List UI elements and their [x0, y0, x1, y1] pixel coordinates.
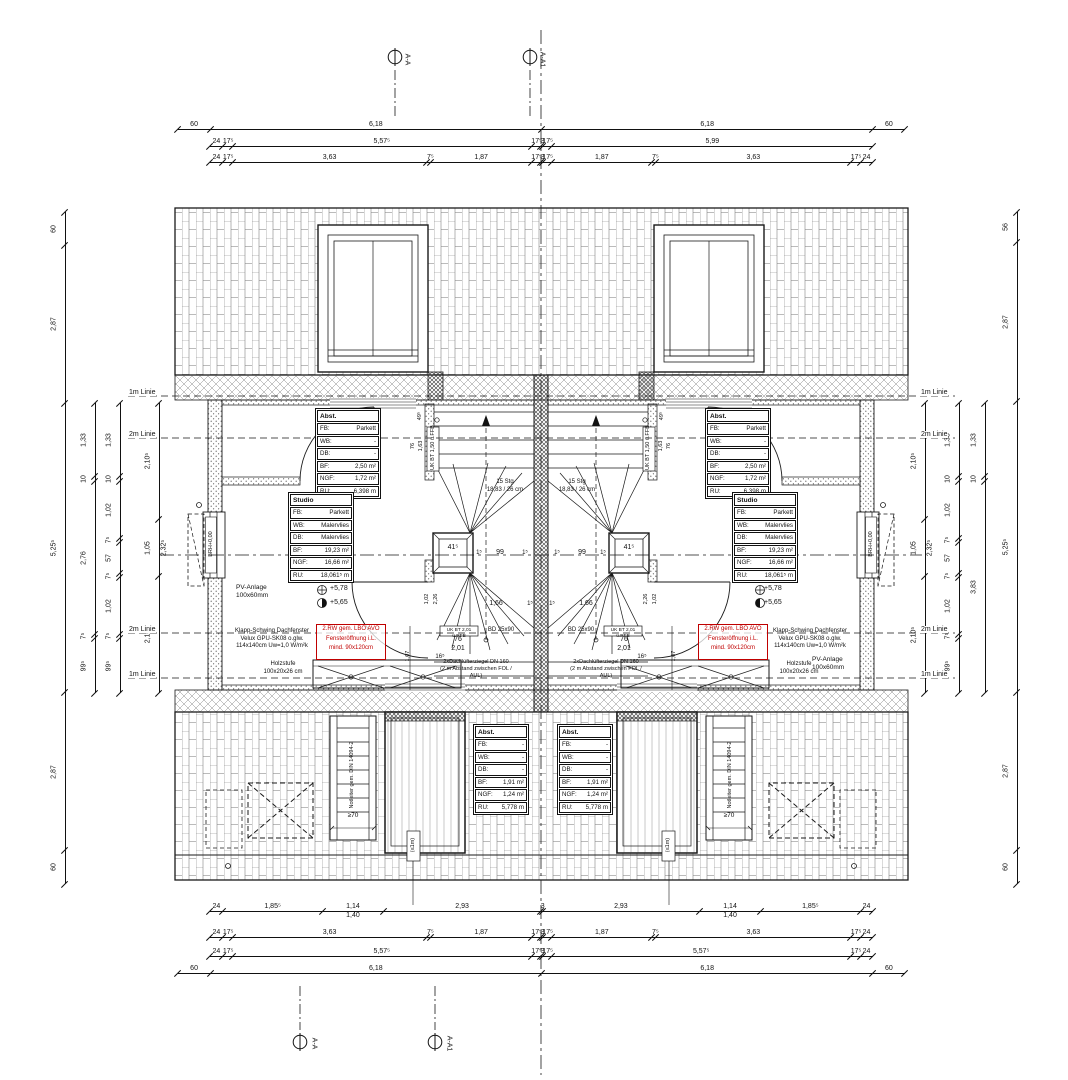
dimension-label: 2,10⁵ [145, 453, 152, 470]
table-title: Abst. [317, 410, 379, 422]
section-marker-aa1-top [520, 47, 540, 72]
stair-width-dim: 99 [572, 549, 592, 558]
dimension-label: 2,76 [81, 551, 88, 565]
dimension-label: 60 [873, 121, 905, 128]
table-row: BF:1,91 m² [559, 777, 611, 789]
dimension-label: 17⁵ [851, 948, 860, 955]
dim-row-bottom-outer: 606,186,1860 [178, 960, 905, 978]
dim-col-left-2: 1,33102,767⁵99⁵ [86, 403, 104, 693]
dimension-label: 60 [1003, 864, 1010, 872]
annotation-line: mind. 90x120cm [317, 644, 385, 654]
dim-226-right: 2,26 [643, 584, 649, 614]
dim-col-right-outer: 562,875,25⁵2,8760 [1008, 212, 1026, 884]
dimension-label: 56 [1003, 224, 1010, 232]
dimension-label: 3,63 [232, 154, 427, 161]
fire-escape-note-right: 2.RW gem. LBO AVOFensteröffnung i.L.mind… [698, 624, 768, 660]
dim-107-right: 1,07 [671, 641, 677, 671]
annotation-line: Klapp-Schwing Dachfenster [226, 628, 318, 636]
brh-label-right: BRH+0,00 [868, 522, 874, 566]
dimension-label: 17⁵ [542, 929, 551, 936]
annotation-line: (2 m Abstand zwischen FOL / AUL) [564, 666, 648, 680]
dimension-label: 2,93 [384, 903, 541, 910]
dimension-label: 1,05 [145, 541, 152, 555]
annotation-line: 100x60mm [236, 592, 294, 600]
annotation-line: 18,83 / 26 cm [479, 487, 531, 495]
dimension-label: 60 [51, 225, 58, 233]
dimension-label: 5,57⁵ [232, 138, 531, 145]
dimension-label: 1,05 [911, 541, 918, 555]
dimension-label: 3,63 [232, 929, 427, 936]
dimension-label: 24 [210, 138, 223, 145]
table-title: Studio [734, 494, 796, 506]
dimension-label: 99⁵ [106, 660, 113, 671]
dimension-label: 7⁵ [81, 633, 88, 640]
small-dim: 1⁵ [546, 601, 558, 609]
dimension-label: 2,93 [542, 903, 699, 910]
vent-tile-note-right: 2xDachlüfterziegel DN 160(2 m Abstand zw… [564, 659, 648, 680]
dimension-label: 24 [860, 903, 873, 910]
metre-line-label: 2m Linie [128, 626, 156, 633]
table-row: NGF:1,72 m² [317, 473, 379, 485]
ukbt150-label-left: UK BT 1,50 ü.FFB [430, 426, 436, 470]
table-row: NGF:1,24 m² [559, 789, 611, 801]
dimension-label: 1,02 [106, 599, 113, 613]
dimension-label: 1,14 [699, 903, 760, 910]
dimension-label: 17⁵ [223, 138, 232, 145]
dimension-label: 1,02 [945, 503, 952, 517]
dimension-label: 1,33 [971, 433, 978, 447]
dimension-label: 2,87 [51, 317, 58, 331]
annotation-line: mind. 90x120cm [699, 644, 767, 654]
table-row: WB:- [317, 436, 379, 448]
dim-165: 16⁵ [634, 654, 650, 662]
table-row: FB:Parkett [317, 423, 379, 435]
dimension-label: 7⁵ [106, 537, 113, 544]
dimension-label: 10 [81, 475, 88, 483]
annotation-line: 2.RW gem. LBO AVO [699, 625, 767, 635]
table-row: DB:- [317, 448, 379, 460]
dim-col-right-inner: 2,10⁵1,052,32⁵2,10⁵ [916, 403, 934, 693]
table-row: NGF:16,66 m² [290, 557, 352, 569]
dimension-label: 57 [945, 554, 952, 562]
dim-col-right-2: 1,33101,027⁵577⁵1,027⁵99⁵ [950, 403, 968, 693]
level-mark-upper-left: +5,78 [330, 585, 348, 594]
dimension-label: 7⁵ [106, 572, 113, 579]
room-table-studio-right: StudioFB:ParkettWB:MalervliesDB:Malervli… [732, 492, 798, 583]
annotation-line: 15 Stg [479, 479, 531, 487]
small-dim: 1⁵ [524, 601, 536, 609]
level-mark-upper-right: +5,78 [764, 585, 782, 594]
dim-102-left: 1,02 [424, 584, 430, 614]
stair-width-dim: 99 [490, 549, 510, 558]
annotation-line: 114x140cm Uw=1,0 W/m²k [764, 643, 856, 651]
dim-76-rot-left: 76 [410, 431, 416, 461]
dimension-label-secondary: 2,32⁵ [927, 540, 934, 557]
table-row: RU:18,061⁵ m [290, 570, 352, 582]
dimension-label: 6,18 [210, 121, 541, 128]
section-label-aa1-bottom: A-A1 [446, 1031, 453, 1057]
dim-row-top-inner: 2417⁵3,637⁵1,8717⁵317⁵1,877⁵3,6317⁵24 [210, 149, 873, 167]
dimension-label: 2,87 [1003, 315, 1010, 329]
dim-163-left: 1,63 [418, 431, 424, 461]
dim-102-right: 1,02 [652, 584, 658, 614]
dimension-label: 6,18 [542, 121, 873, 128]
dimension-label: 7⁵ [945, 572, 952, 579]
dim-495-right: 49⁵ [659, 404, 665, 428]
dim-201: 2,01 [446, 645, 470, 654]
small-dim: 1⁵ [518, 550, 532, 558]
dimension-label: 17⁵ [542, 948, 551, 955]
table-row: FB:Parkett [734, 507, 796, 519]
dimension-label: 17⁵ [542, 154, 551, 161]
annotation-line: PV-Anlage [236, 584, 294, 592]
dimension-label: 60 [873, 965, 905, 972]
stair-count-label-left: 15 Stg18,83 / 26 cm [479, 479, 531, 494]
table-row: DB:- [707, 448, 769, 460]
dim-row-bottom-2: 2417⁵3,637⁵1,8717⁵317⁵1,877⁵3,6317⁵24 [210, 924, 873, 942]
section-label-aa-bottom: A-A [311, 1031, 318, 1057]
dimension-line [959, 403, 960, 693]
table-title: Abst. [475, 726, 527, 738]
room-table-abst-bottom-right: Abst.FB:-WB:-DB:-BF:1,91 m²NGF:1,24 m²RU… [557, 724, 613, 815]
dim-row-bottom-1: 241,85⁵1,141,402,9332,931,141,401,85⁵24 [210, 898, 873, 916]
dimension-label: 17⁵ [223, 948, 232, 955]
dimension-label: 7⁵ [945, 537, 952, 544]
section-label-aa1-top: A-A1 [539, 47, 546, 73]
ukbt201-label-right: UK BT 2,01 ü.RFB [605, 628, 641, 640]
table-row: WB:Malervlies [734, 520, 796, 532]
pv-note-left: PV-Anlage100x60mm [236, 584, 294, 600]
annotation-line: 2.RW gem. LBO AVO [317, 625, 385, 635]
dimension-label: 3,83 [971, 581, 978, 595]
floor-plan-sheet: A-A A-A1 A-A A-A1 606,186,1860 2417⁵5,57… [0, 0, 1068, 1080]
chimney-dim-right: 41⁵ [615, 544, 643, 553]
dimension-label: 24 [210, 903, 223, 910]
dimension-label: 1,85⁵ [761, 903, 861, 910]
annotation-line: 18,83 / 26 cm [551, 487, 603, 495]
table-row: RU:18,061⁵ m [734, 570, 796, 582]
fire-escape-note-left: 2.RW gem. LBO AVOFensteröffnung i.L.mind… [316, 624, 386, 660]
table-row: WB:- [475, 752, 527, 764]
room-table-studio-left: StudioFB:ParkettWB:MalervliesDB:Malervli… [288, 492, 354, 583]
section-marker-aa1-bottom [425, 1032, 445, 1057]
dimension-label: 1,87 [552, 154, 652, 161]
metre-line-label: 2m Linie [920, 626, 948, 633]
table-row: BF:2,50 m² [707, 461, 769, 473]
vent-tile-note-left: 2xDachlüfterziegel DN 160(2 m Abstand zw… [434, 659, 518, 680]
table-row: DB:- [559, 764, 611, 776]
dimension-label: 60 [178, 121, 210, 128]
roof-window-note-left: Klapp-Schwing DachfensterVelux GPU-SK08 … [226, 628, 318, 651]
metre-line-label: 1m Linie [920, 389, 948, 396]
table-row: FB:- [475, 739, 527, 751]
dim-107-left: 1,07 [405, 641, 411, 671]
table-row: BF:19,23 m² [290, 545, 352, 557]
dimension-label: 24 [210, 929, 223, 936]
roof-window-note-right: Klapp-Schwing DachfensterVelux GPU-SK08 … [764, 628, 856, 651]
dimension-label: 2,10⁵ [911, 627, 918, 644]
dimension-label: 3,63 [656, 929, 851, 936]
dimension-label: 5,57⁵ [552, 948, 851, 955]
brh-label-left: BRH+0,00 [208, 522, 214, 566]
dim-col-left-3: 1,33101,027⁵577⁵1,027⁵99⁵ [111, 403, 129, 693]
annotation-line: 100x20x26 cm [252, 669, 314, 677]
dimension-label: 2,87 [1003, 765, 1010, 779]
dimension-label: 2,10⁵ [911, 453, 918, 470]
dim-row-top-outer: 606,186,1860 [178, 116, 905, 134]
bd-label-left: BD 25x90 [484, 627, 518, 635]
dimension-line [985, 403, 986, 693]
dim-row-bottom-3: 2417⁵5,57⁵17⁵317⁵5,57⁵17⁵24 [210, 943, 873, 961]
section-marker-aa-bottom [290, 1032, 310, 1057]
dimension-label: 1,33 [81, 433, 88, 447]
small-dim: 1⁵ [596, 550, 610, 558]
table-row: RU:5,778 m [475, 802, 527, 814]
table-row: WB:- [707, 436, 769, 448]
dim-76-rot-right: 76 [666, 431, 672, 461]
stair-count-label-right: 15 Stg18,83 / 26 cm [551, 479, 603, 494]
dimension-line [1017, 212, 1018, 884]
ukbt150-label-right: UK BT 1,50 ü.FFB [645, 426, 651, 470]
chimney-dim-left: 41⁵ [439, 544, 467, 553]
dimension-label: 24 [860, 929, 873, 936]
dimension-label: 2,87 [51, 765, 58, 779]
small-dim: 1⁵ [472, 550, 486, 558]
annotation-line: Klapp-Schwing Dachfenster [764, 628, 856, 636]
dimension-label: 99⁵ [945, 660, 952, 671]
dimension-label: 5,25⁵ [51, 540, 58, 557]
dimension-label: 60 [51, 864, 58, 872]
table-row: BF:19,23 m² [734, 545, 796, 557]
dimension-label: 17⁵ [851, 929, 860, 936]
ge70-label-left: ≥70 [340, 812, 366, 820]
dimension-label-secondary: 1,40 [699, 912, 760, 919]
dimension-label: 24 [860, 948, 873, 955]
table-row: RU:5,778 m [559, 802, 611, 814]
dimension-label: 10 [106, 475, 113, 483]
table-row: NGF:1,24 m² [475, 789, 527, 801]
annotation-line: Velux GPU-SK08 o.glw. [226, 636, 318, 644]
dim-495-left: 49⁵ [417, 404, 423, 428]
table-row: DB:- [475, 764, 527, 776]
table-row: WB:Malervlies [290, 520, 352, 532]
dimension-label: 17⁵ [531, 154, 540, 161]
annotation-line: Fensteröffnung i.L. [317, 635, 385, 645]
dimension-label-secondary: 2,32⁵ [161, 540, 168, 557]
ukbt201-label-left: UK BT 2,01 ü.RFB [441, 628, 477, 640]
metre-line-label: 2m Linie [920, 431, 948, 438]
dimension-label: 6,18 [210, 965, 541, 972]
annotation-line: (2 m Abstand zwischen FOL / AUL) [434, 666, 518, 680]
dimension-label: 24 [860, 154, 873, 161]
dimension-label: 24 [210, 154, 223, 161]
dimension-label: 17⁵ [531, 929, 540, 936]
dimension-label: 24 [210, 948, 223, 955]
table-title: Abst. [559, 726, 611, 738]
annotation-line: Holzstufe [252, 661, 314, 669]
dimension-label: 1,02 [945, 599, 952, 613]
annotation-line: 15 Stg [551, 479, 603, 487]
annotation-line: 114x140cm Uw=1,0 W/m²k [226, 643, 318, 651]
metre-line-label: 1m Linie [128, 671, 156, 678]
table-title: Abst. [707, 410, 769, 422]
dimension-label: 1,02 [106, 503, 113, 517]
annotation-line: Fensteröffnung i.L. [699, 635, 767, 645]
dim-226-left: 2,26 [433, 584, 439, 614]
stair-dim-166: 1,66 [572, 600, 600, 609]
dimension-label: 5,25⁵ [1003, 539, 1010, 556]
dimension-label: 3,63 [656, 154, 851, 161]
table-row: FB:Parkett [290, 507, 352, 519]
table-row: BF:1,91 m² [475, 777, 527, 789]
dimension-label: 10 [945, 475, 952, 483]
dimension-label: 1,87 [552, 929, 652, 936]
stair-dim-166: 1,66 [482, 600, 510, 609]
dimension-label: 57 [106, 554, 113, 562]
dimension-label: 17⁵ [531, 138, 540, 145]
dimension-label: 5,57⁵ [232, 948, 531, 955]
dim-163-right: 1,63 [658, 431, 664, 461]
level-mark-lower-right: +5,65 [764, 599, 782, 608]
table-row: BF:2,50 m² [317, 461, 379, 473]
room-table-abst-left: Abst.FB:ParkettWB:-DB:-BF:2,50 m²NGF:1,7… [315, 408, 381, 499]
metre-line-label: 2m Linie [128, 431, 156, 438]
table-row: FB:Parkett [707, 423, 769, 435]
dimension-label: 6,18 [542, 965, 873, 972]
dim-col-left-outer: 602,875,25⁵2,8760 [56, 212, 74, 884]
dimension-line [95, 403, 96, 693]
dimension-label-secondary: 1,40 [322, 912, 383, 919]
table-row: DB:Malervlies [290, 532, 352, 544]
dimension-label: 7⁵ [945, 633, 952, 640]
table-row: FB:- [559, 739, 611, 751]
dimension-label: 1,87 [431, 929, 531, 936]
dimension-label: 1,87 [431, 154, 531, 161]
dim-201: 2,01 [612, 645, 636, 654]
table-row: NGF:16,66 m² [734, 557, 796, 569]
small-dim: 1⁵ [550, 550, 564, 558]
dimension-label: 17⁵ [223, 929, 232, 936]
roof-upper-band [175, 208, 908, 375]
dimension-label: 1,85⁵ [223, 903, 323, 910]
annotation-line: 100x60mm [812, 664, 870, 672]
dimension-label: 10 [971, 475, 978, 483]
metre-line-label: 1m Linie [920, 671, 948, 678]
dimension-label: 17⁵ [542, 138, 551, 145]
holzstufe-note-left2: Holzstufe100x20x26 cm [252, 661, 314, 676]
level-mark-lower-left: +5,65 [330, 599, 348, 608]
dimension-label: 17⁵ [851, 154, 860, 161]
table-row: DB:Malervlies [734, 532, 796, 544]
table-title: Studio [290, 494, 352, 506]
dim-165: 16⁵ [432, 654, 448, 662]
annotation-line: PV-Anlage [812, 656, 870, 664]
metre-line-label: 1m Linie [128, 389, 156, 396]
dimension-label: 17⁵ [223, 154, 232, 161]
dimension-line [120, 403, 121, 693]
dim-col-left-inner: 2,10⁵1,052,32⁵2,10⁵ [150, 403, 168, 693]
le1m-label-right: (≤1m) [665, 832, 671, 858]
dimension-label: 1,33 [106, 433, 113, 447]
section-label-aa-top: A-A [404, 47, 411, 73]
dimension-label: 60 [178, 965, 210, 972]
dimension-label: 1,14 [322, 903, 383, 910]
bd-label-right: BD 25x90 [564, 627, 598, 635]
table-row: NGF:1,72 m² [707, 473, 769, 485]
dimension-label: 99⁵ [81, 660, 88, 671]
ge70-label-right: ≥70 [716, 812, 742, 820]
dimension-label: 7⁵ [106, 633, 113, 640]
dim-col-right-3: 1,33103,83 [976, 403, 994, 693]
pv-note-right: PV-Anlage100x60mm [812, 656, 870, 672]
room-table-abst-bottom-left: Abst.FB:-WB:-DB:-BF:1,91 m²NGF:1,24 m²RU… [473, 724, 529, 815]
le1m-label-left: (≤1m) [410, 832, 416, 858]
dimension-line [65, 212, 66, 884]
room-table-abst-right: Abst.FB:ParkettWB:-DB:-BF:2,50 m²NGF:1,7… [705, 408, 771, 499]
table-row: WB:- [559, 752, 611, 764]
dimension-label: 17⁵ [531, 948, 540, 955]
section-marker-aa-top [385, 47, 405, 72]
annotation-line: Velux GPU-SK08 o.glw. [764, 636, 856, 644]
dimension-label: 5,99 [552, 138, 873, 145]
